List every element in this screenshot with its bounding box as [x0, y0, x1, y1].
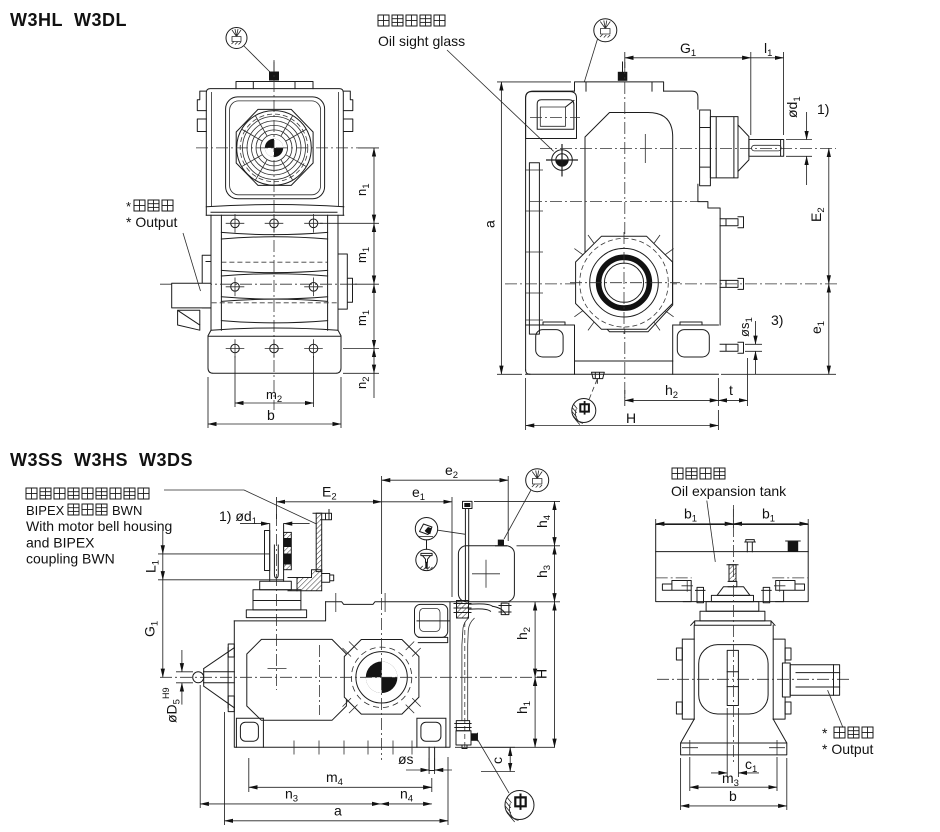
svg-text:W3SS W3HS W3DS: W3SS W3HS W3DS — [10, 450, 193, 470]
svg-text:Oil expansion tank: Oil expansion tank — [671, 483, 787, 499]
svg-text:H: H — [626, 410, 636, 426]
svg-text:*: * — [822, 725, 828, 741]
svg-text:and BIPEX: and BIPEX — [26, 535, 95, 551]
svg-text:t: t — [729, 382, 733, 398]
svg-text:coupling BWN: coupling BWN — [26, 551, 115, 567]
svg-text:With motor bell housing: With motor bell housing — [26, 518, 172, 534]
svg-text:W3HL W3DL: W3HL W3DL — [10, 10, 127, 30]
svg-text:b: b — [267, 407, 275, 423]
svg-text:BIPEX: BIPEX — [26, 503, 65, 518]
svg-text:1): 1) — [817, 101, 829, 117]
svg-text:3): 3) — [771, 312, 783, 328]
svg-text:* Output: * Output — [126, 214, 177, 230]
svg-text:H9: H9 — [161, 687, 171, 699]
svg-text:BWN: BWN — [112, 503, 142, 518]
svg-text:* Output: * Output — [822, 741, 873, 757]
svg-text:a: a — [482, 220, 498, 228]
svg-text:øs: øs — [398, 751, 414, 767]
svg-text:Oil sight glass: Oil sight glass — [378, 33, 465, 49]
svg-text:H: H — [534, 669, 550, 679]
svg-text:a: a — [334, 803, 342, 819]
svg-text:b: b — [729, 788, 737, 804]
svg-text:c: c — [489, 757, 505, 764]
svg-text:*: * — [126, 199, 131, 214]
